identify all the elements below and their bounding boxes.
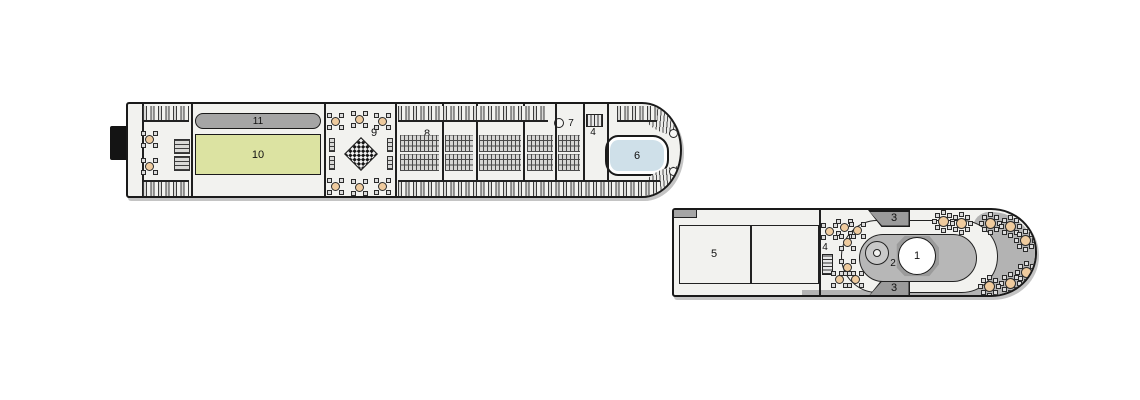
chair-icon	[831, 283, 836, 288]
chair-icon	[386, 190, 391, 195]
table-icon	[1020, 235, 1031, 246]
table-8-seats	[999, 272, 1022, 295]
chair-icon	[153, 143, 158, 148]
table-4-seats	[141, 158, 158, 175]
lounger-row	[398, 106, 548, 122]
table-4-seats	[327, 178, 344, 195]
chair-icon	[968, 221, 973, 226]
bench	[329, 156, 335, 170]
chair-icon	[1023, 229, 1028, 234]
aft-pool-label: 1	[914, 250, 920, 262]
walking-track-label: 11	[253, 116, 263, 127]
chair-icon	[351, 111, 356, 116]
table-4-seats	[374, 178, 391, 195]
chair-icon	[1014, 238, 1019, 243]
lounger-row	[143, 106, 189, 122]
stairs-top-label: 3	[877, 211, 911, 225]
giant-chess-board	[344, 137, 378, 171]
deck-light-icon	[669, 129, 678, 138]
table-4-seats	[831, 271, 848, 288]
partition-wall	[191, 104, 193, 196]
chair-icon	[1008, 272, 1013, 277]
aft-deck-bar-label: 4	[818, 242, 832, 254]
table-icon	[825, 227, 834, 236]
chair-icon	[1033, 270, 1038, 275]
chair-icon	[950, 221, 955, 226]
deck-light-icon	[669, 167, 678, 176]
table-4-seats	[351, 179, 368, 196]
table-icon	[355, 183, 364, 192]
table-icon	[355, 115, 364, 124]
chair-icon	[861, 222, 866, 227]
chair-icon	[327, 113, 332, 118]
chair-icon	[839, 246, 844, 251]
table-icon	[331, 182, 340, 191]
table-icon	[956, 218, 967, 229]
chair-icon	[851, 259, 856, 264]
lounger-row	[398, 180, 660, 196]
chair-icon	[327, 190, 332, 195]
aft-pool: 1	[898, 237, 936, 275]
table-icon	[840, 223, 849, 232]
table-8-seats	[950, 212, 973, 235]
table-4-seats	[351, 111, 368, 128]
lounger-cluster	[558, 154, 580, 171]
chair-icon	[339, 178, 344, 183]
chair-icon	[1024, 279, 1029, 284]
chair-icon	[1008, 233, 1013, 238]
chair-icon	[339, 125, 344, 130]
table-icon	[145, 162, 154, 171]
chair-icon	[859, 271, 864, 276]
table-icon	[843, 238, 852, 247]
chair-icon	[836, 219, 841, 224]
sun-deck: 11 10 9 8 7 4 6	[126, 102, 682, 198]
chair-icon	[374, 190, 379, 195]
chair-icon	[351, 191, 356, 196]
chair-icon	[978, 284, 983, 289]
stairs-bottom-label: 3	[877, 281, 911, 295]
chair-icon	[941, 210, 946, 215]
table-icon	[331, 117, 340, 126]
chair-icon	[141, 143, 146, 148]
table-4-seats	[374, 113, 391, 130]
chair-icon	[374, 125, 379, 130]
table-icon	[145, 135, 154, 144]
whirlpool	[865, 241, 889, 265]
chair-icon	[979, 221, 984, 226]
whirlpool-label: 2	[887, 258, 899, 270]
table-icon	[835, 275, 844, 284]
chair-icon	[861, 234, 866, 239]
chair-icon	[363, 191, 368, 196]
chair-icon	[1008, 215, 1013, 220]
chair-icon	[821, 235, 826, 240]
chair-icon	[839, 259, 844, 264]
chair-icon	[1017, 281, 1022, 286]
lounger-cluster	[479, 135, 521, 152]
table-8-seats	[978, 275, 1001, 298]
table-icon	[985, 218, 996, 229]
chair-icon	[996, 284, 1001, 289]
chair-icon	[141, 131, 146, 136]
putting-green-label: 10	[252, 149, 264, 161]
table-icon	[378, 182, 387, 191]
deck-plan-canvas: 11 10 9 8 7 4 6 3 3 1 2	[0, 0, 1140, 400]
lounger-cluster	[479, 154, 521, 171]
lounger-cluster	[527, 135, 553, 152]
lounger-cluster	[527, 154, 553, 171]
lounge-rooms-label: 5	[679, 225, 749, 284]
lounger-stack	[174, 156, 190, 171]
chair-icon	[849, 222, 854, 227]
chair-icon	[987, 293, 992, 298]
table-icon	[938, 216, 949, 227]
sun-deck-bar-label: 4	[586, 127, 600, 139]
lounger-stack	[174, 139, 190, 154]
chair-icon	[1008, 290, 1013, 295]
chair-icon	[386, 113, 391, 118]
walking-track: 11	[195, 113, 321, 129]
table-icon	[984, 281, 995, 292]
table-4-seats	[141, 131, 158, 148]
deck-step	[674, 210, 697, 218]
lounger-cluster	[400, 135, 439, 152]
chair-icon	[351, 123, 356, 128]
bench	[387, 156, 393, 170]
chair-icon	[374, 113, 379, 118]
chair-icon	[851, 234, 856, 239]
chair-icon	[386, 125, 391, 130]
table-4-seats	[847, 271, 864, 288]
chair-icon	[363, 111, 368, 116]
chair-icon	[839, 234, 844, 239]
chair-icon	[386, 178, 391, 183]
game-circle-label: 7	[565, 117, 577, 130]
lounger-row	[617, 106, 657, 122]
table-4-seats	[327, 113, 344, 130]
chair-icon	[831, 271, 836, 276]
chair-icon	[851, 246, 856, 251]
bench	[387, 138, 393, 152]
lounger-cluster	[445, 135, 473, 152]
chair-icon	[374, 178, 379, 183]
chair-icon	[959, 212, 964, 217]
chair-icon	[988, 230, 993, 235]
chair-icon	[987, 275, 992, 280]
chair-icon	[1032, 238, 1037, 243]
chair-icon	[847, 283, 852, 288]
table-4-seats	[839, 234, 856, 251]
chair-icon	[1023, 247, 1028, 252]
chair-icon	[821, 223, 826, 228]
bench	[329, 138, 335, 152]
chair-icon	[859, 283, 864, 288]
table-8-seats	[1014, 229, 1037, 252]
room-divider	[750, 226, 752, 283]
chair-icon	[988, 212, 993, 217]
chair-icon	[153, 170, 158, 175]
table-icon	[1005, 278, 1016, 289]
chair-icon	[327, 125, 332, 130]
lounger-cluster	[445, 154, 473, 171]
sun-deck-pool-label: 6	[634, 150, 640, 162]
lounger-cluster	[558, 135, 580, 152]
chair-icon	[999, 224, 1004, 229]
lounger-row	[143, 180, 189, 196]
table-icon	[1021, 267, 1032, 278]
chair-icon	[351, 179, 356, 184]
chair-icon	[363, 179, 368, 184]
sun-deck-bar	[586, 114, 603, 127]
chair-icon	[1024, 261, 1029, 266]
table-icon	[378, 117, 387, 126]
partition-wall	[395, 104, 397, 196]
chair-icon	[847, 271, 852, 276]
chair-icon	[941, 228, 946, 233]
chair-icon	[339, 190, 344, 195]
lounger-cluster	[400, 154, 439, 171]
chair-icon	[959, 230, 964, 235]
chair-icon	[339, 113, 344, 118]
putting-green: 10	[195, 134, 321, 175]
chair-icon	[141, 158, 146, 163]
chair-icon	[363, 123, 368, 128]
chair-icon	[153, 158, 158, 163]
chair-icon	[141, 170, 146, 175]
chair-icon	[932, 219, 937, 224]
chair-icon	[153, 131, 158, 136]
chair-icon	[327, 178, 332, 183]
aft-deck: 3 3 1 2 5 4	[672, 208, 1037, 297]
table-icon	[851, 275, 860, 284]
